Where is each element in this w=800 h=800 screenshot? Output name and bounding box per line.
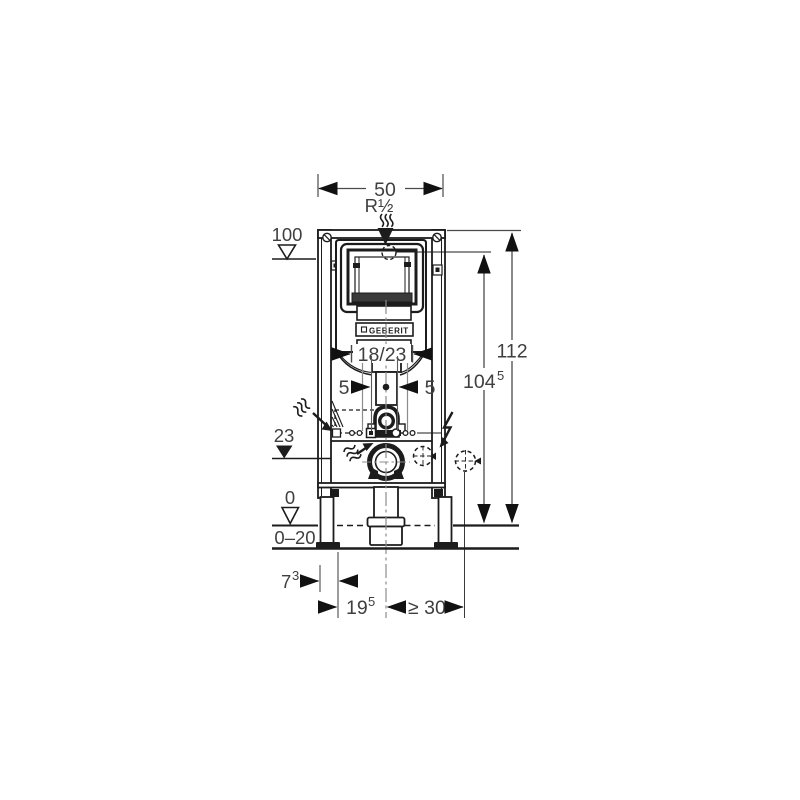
dim-floor-level: 0 0–20 bbox=[274, 487, 315, 548]
supply-height-label: 104 bbox=[463, 371, 496, 393]
floor-finish-label: 0–20 bbox=[274, 527, 315, 548]
dim-drain-offset: 19 5 bbox=[318, 594, 404, 619]
outlet-level-label: 23 bbox=[274, 425, 295, 446]
drain-offset-label: 19 bbox=[346, 597, 368, 619]
left-foot bbox=[321, 497, 334, 543]
level-marker-open bbox=[279, 245, 296, 259]
right-foot bbox=[439, 497, 452, 543]
front-depth-label: 7 bbox=[281, 571, 291, 592]
total-height-label: 112 bbox=[496, 341, 527, 363]
center-point bbox=[383, 384, 390, 391]
left-offset-label: 5 bbox=[339, 377, 350, 399]
hatch-area bbox=[332, 401, 343, 427]
drain-offset-sup: 5 bbox=[368, 594, 375, 609]
supply-level-label: 100 bbox=[272, 224, 303, 245]
front-depth-sup: 3 bbox=[292, 568, 299, 583]
rail-clip-icon bbox=[433, 265, 442, 275]
supply-thread-label: R½ bbox=[365, 195, 394, 216]
screw-icon bbox=[323, 233, 331, 241]
dim-front-depth: 7 3 bbox=[281, 552, 356, 618]
access-window bbox=[355, 257, 409, 297]
right-offset-label: 5 bbox=[425, 377, 436, 399]
dim-supply-level: 100 bbox=[272, 224, 316, 259]
supply-height-sup: 5 bbox=[497, 368, 504, 383]
dim-side-clearance: ≥ 30 bbox=[408, 597, 463, 619]
plate-width-label: 18/23 bbox=[358, 344, 407, 366]
flush-plate-panel bbox=[357, 306, 411, 320]
brand-text: GEBERIT bbox=[369, 327, 409, 336]
technical-drawing: GEBERIT bbox=[0, 0, 800, 800]
side-clearance-label: ≥ 30 bbox=[408, 597, 446, 619]
level-marker-open bbox=[282, 508, 299, 524]
level-marker-filled bbox=[276, 446, 293, 459]
screw-icon bbox=[433, 233, 441, 241]
floor-level-label: 0 bbox=[285, 487, 295, 508]
foot-clamp-bolt bbox=[330, 489, 339, 497]
access-window-sill bbox=[352, 293, 412, 302]
foot-clamp-bolt bbox=[434, 489, 443, 497]
brand-label: GEBERIT bbox=[356, 323, 413, 336]
dim-supply-height: 104 5 bbox=[461, 255, 510, 523]
